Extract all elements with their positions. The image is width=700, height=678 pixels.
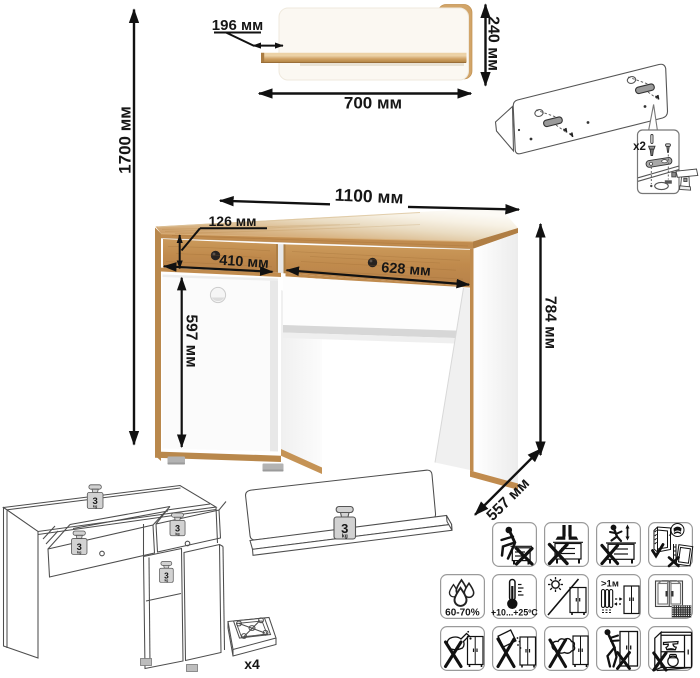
svg-text:x4: x4 bbox=[244, 656, 260, 672]
svg-text:597 мм: 597 мм bbox=[182, 314, 199, 367]
svg-text:x2: x2 bbox=[633, 141, 646, 153]
svg-text:196 мм: 196 мм bbox=[212, 17, 263, 34]
svg-text:700 мм: 700 мм bbox=[344, 94, 402, 113]
svg-text:1700 мм: 1700 мм bbox=[115, 106, 134, 174]
svg-text:126 мм: 126 мм bbox=[209, 213, 257, 229]
svg-text:784 мм: 784 мм bbox=[541, 296, 558, 349]
svg-text:60-70%: 60-70% bbox=[445, 608, 480, 619]
svg-text:240 мм: 240 мм bbox=[484, 16, 501, 71]
svg-text:>1м: >1м bbox=[601, 579, 619, 590]
svg-text:1100 мм: 1100 мм bbox=[334, 185, 404, 208]
svg-text:+10...+25ºC: +10...+25ºC bbox=[491, 608, 538, 618]
